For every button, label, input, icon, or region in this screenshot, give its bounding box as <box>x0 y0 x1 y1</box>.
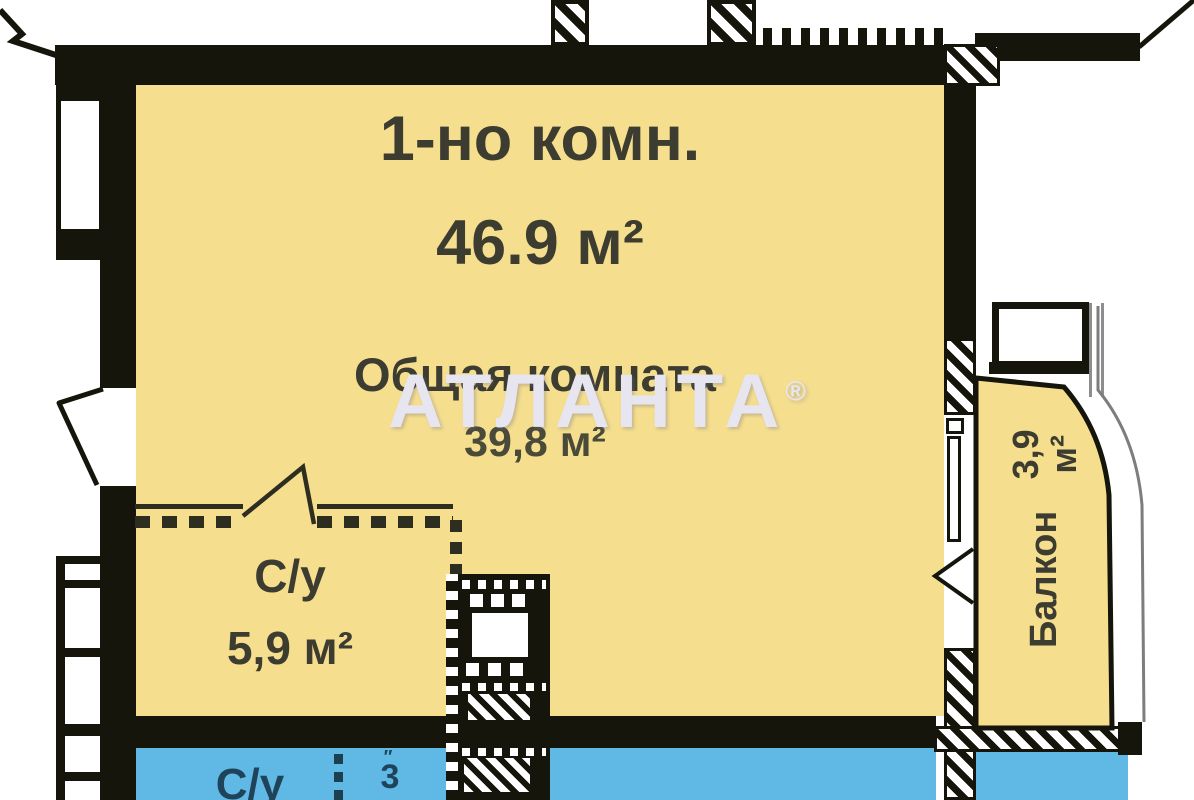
shaft-dash-row <box>462 580 546 589</box>
shaft-dash-row <box>462 748 546 756</box>
top-wall-tick-strip <box>763 28 943 45</box>
top-right-corner-hatch <box>944 44 1000 86</box>
bathroom-partition-right <box>317 504 453 528</box>
neighbor-area-mark: ″ <box>368 748 408 767</box>
top-wall <box>95 45 975 85</box>
neighbor-room-label: С/у <box>160 762 340 800</box>
left-window <box>56 70 104 260</box>
facade-pier-right <box>707 0 756 46</box>
utility-shaft <box>446 574 550 800</box>
left-window-top-sash <box>61 75 99 101</box>
left-channel-divider <box>65 648 100 657</box>
left-channel-divider <box>65 772 100 781</box>
shaft-window <box>472 613 528 657</box>
balcony-door-frame <box>947 436 961 542</box>
bathroom-partition-left <box>135 504 243 528</box>
entrance-door-leaf-icon <box>59 389 103 485</box>
shaft-vent-cell <box>491 594 504 607</box>
balcony-label: Балкон <box>1025 511 1065 648</box>
facade-pier-left <box>551 0 589 46</box>
left-channel-divider <box>65 724 100 736</box>
bathroom-area: 5,9 м² <box>150 624 430 672</box>
apartment-type-title: 1-но комн. <box>240 106 840 172</box>
shaft-left-dashed-edge <box>446 574 458 800</box>
shaft-vent-cell <box>488 663 501 676</box>
left-channel-divider <box>65 580 100 588</box>
shaft-hatch-block <box>464 758 530 792</box>
agency-watermark-text: АТЛАНТА <box>388 359 785 444</box>
right-wall-upper <box>944 84 976 340</box>
left-window-bottom-sash <box>61 229 99 255</box>
balcony-glazing-bar <box>1089 303 1104 397</box>
balcony-bottom-wall-cap <box>1118 722 1142 755</box>
shaft-vent-cell <box>466 663 479 676</box>
left-wall-upper <box>100 45 136 388</box>
bathroom-label: С/у <box>170 552 410 600</box>
floorplan-canvas: 1-но комн. 46.9 м² Общая комната 39,8 м²… <box>0 0 1194 800</box>
neighbor-floor-under-balcony <box>976 752 1128 800</box>
registered-mark-icon: ® <box>785 376 812 407</box>
left-channel <box>65 556 100 800</box>
break-line-topright-icon <box>1139 0 1194 47</box>
shaft-hatch-block <box>468 694 530 720</box>
shaft-vent-cell <box>510 663 523 676</box>
left-channel-divider <box>65 556 100 564</box>
shaft-vent-cell <box>512 594 525 607</box>
right-wall-hatch-lower <box>944 648 976 800</box>
shaft-vent-cell <box>470 594 483 607</box>
apartment-total-area: 46.9 м² <box>240 210 840 276</box>
bathroom-partition-vertical <box>450 512 462 576</box>
balcony-bottom-wall <box>934 726 1122 752</box>
left-wall-lower <box>100 486 136 800</box>
left-channel-outer-line <box>56 556 65 800</box>
agency-watermark: АТЛАНТА® <box>160 358 1040 445</box>
shaft-dash-row <box>462 683 546 691</box>
